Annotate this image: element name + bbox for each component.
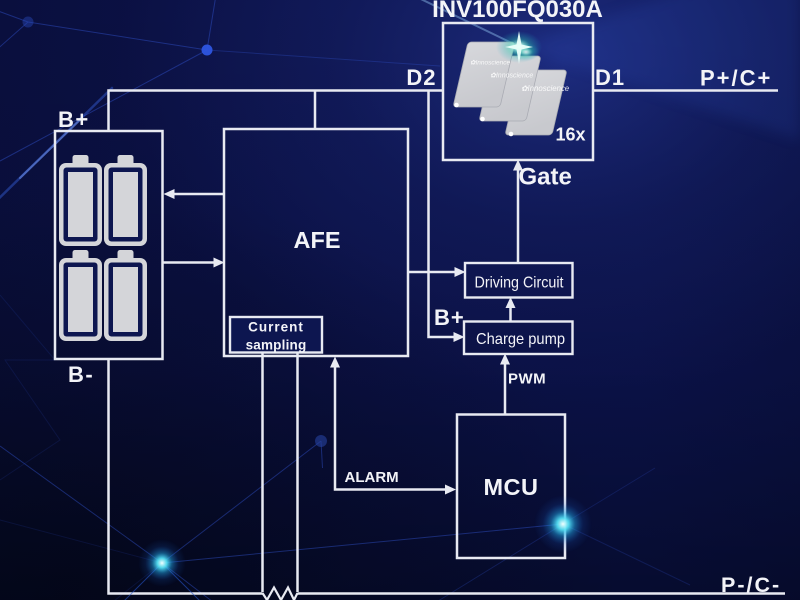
- svg-text:✿Innoscience: ✿Innoscience: [470, 60, 511, 67]
- svg-text:B+: B+: [58, 107, 90, 132]
- svg-text:Driving Circuit: Driving Circuit: [475, 275, 564, 292]
- svg-text:16x: 16x: [556, 125, 586, 145]
- svg-text:MCU: MCU: [483, 474, 538, 500]
- svg-text:AFE: AFE: [294, 227, 341, 253]
- svg-text:✿Innoscience: ✿Innoscience: [490, 73, 533, 80]
- svg-text:ALARM: ALARM: [345, 469, 399, 486]
- svg-text:B+: B+: [434, 305, 465, 330]
- svg-text:P+/C+: P+/C+: [700, 66, 772, 91]
- svg-text:D2: D2: [406, 65, 436, 90]
- svg-text:PWM: PWM: [508, 371, 546, 388]
- svg-text:Gate: Gate: [519, 164, 572, 191]
- svg-text:INV100FQ030A: INV100FQ030A: [432, 0, 603, 23]
- svg-text:✿Innoscience: ✿Innoscience: [521, 84, 570, 93]
- svg-text:Current: Current: [248, 320, 304, 335]
- svg-text:B-: B-: [68, 362, 94, 387]
- svg-text:D1: D1: [595, 65, 625, 90]
- svg-text:Charge pump: Charge pump: [476, 331, 565, 348]
- svg-text:sampling: sampling: [246, 338, 307, 353]
- svg-text:P-/C-: P-/C-: [721, 573, 781, 597]
